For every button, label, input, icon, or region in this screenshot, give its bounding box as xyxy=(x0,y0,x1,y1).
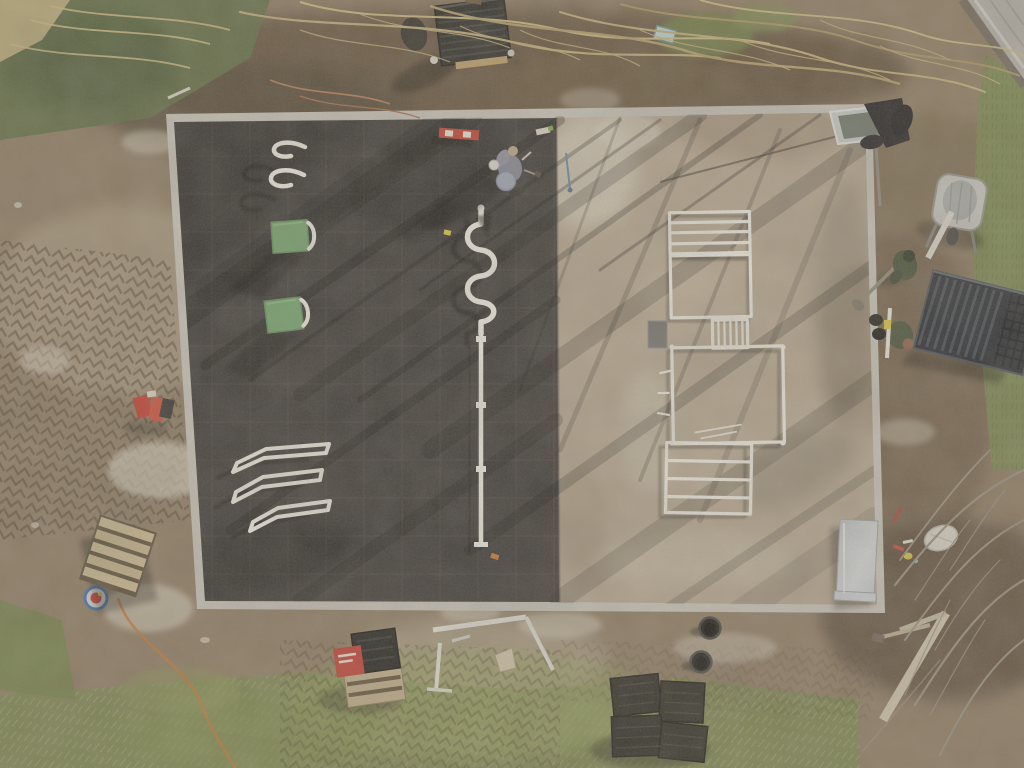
scene-canvas xyxy=(0,0,1024,768)
noise-overlay xyxy=(0,0,1024,768)
aerial-photo: Top-down drone photo of an outdoor calis… xyxy=(0,0,1024,768)
